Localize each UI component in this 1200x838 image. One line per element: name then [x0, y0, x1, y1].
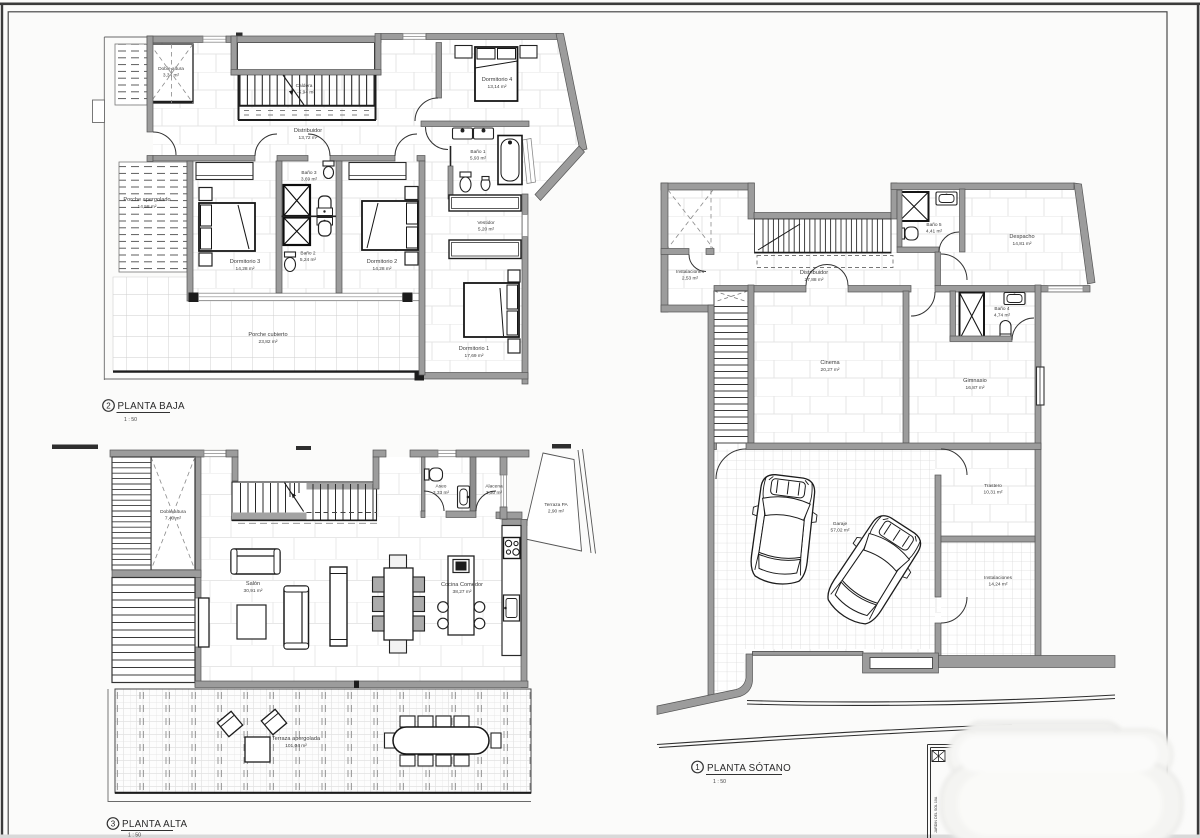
- svg-text:3,69 m²: 3,69 m²: [301, 177, 318, 183]
- svg-text:Baño 4: Baño 4: [994, 306, 1010, 312]
- svg-text:Terraza apergolada: Terraza apergolada: [272, 736, 321, 742]
- svg-text:Porche cubierto: Porche cubierto: [248, 332, 287, 338]
- svg-text:Doble altura: Doble altura: [160, 509, 186, 515]
- svg-text:Porche apergolado: Porche apergolado: [123, 197, 170, 203]
- svg-text:1 : 50: 1 : 50: [124, 417, 137, 423]
- svg-text:30,91 m²: 30,91 m²: [244, 588, 263, 594]
- svg-text:Dormitorio 3: Dormitorio 3: [230, 259, 260, 265]
- svg-text:Terraza PA: Terraza PA: [544, 502, 568, 508]
- svg-text:JARDIN DEL SOL 10A: JARDIN DEL SOL 10A: [934, 796, 938, 833]
- svg-text:PLANTA BAJA: PLANTA BAJA: [118, 401, 186, 412]
- svg-text:20,27 m²: 20,27 m²: [821, 367, 840, 373]
- svg-text:Despacho: Despacho: [1009, 234, 1034, 240]
- svg-text:5,20 m²: 5,20 m²: [478, 227, 495, 233]
- svg-text:5,24 m²: 5,24 m²: [300, 257, 317, 263]
- svg-text:Dormitorio 1: Dormitorio 1: [459, 346, 489, 352]
- svg-text:23,82 m²: 23,82 m²: [259, 339, 278, 345]
- svg-text:Instalaciones: Instalaciones: [984, 575, 1013, 581]
- svg-text:38,27 m²: 38,27 m²: [453, 589, 472, 595]
- svg-text:14,28 m²: 14,28 m²: [236, 266, 255, 272]
- svg-text:10,31 m²: 10,31 m²: [984, 490, 1003, 496]
- svg-text:14,28 m²: 14,28 m²: [373, 266, 392, 272]
- svg-text:5,93 m²: 5,93 m²: [470, 156, 487, 162]
- svg-text:57,02 m²: 57,02 m²: [831, 528, 850, 534]
- svg-text:2,53 m²: 2,53 m²: [682, 276, 699, 282]
- svg-text:PLANTA ALTA: PLANTA ALTA: [122, 819, 188, 830]
- svg-text:Cocina Comedor: Cocina Comedor: [441, 582, 483, 588]
- svg-text:3: 3: [111, 820, 116, 829]
- svg-text:Garaje: Garaje: [833, 521, 848, 527]
- svg-text:2,90 m²: 2,90 m²: [548, 509, 565, 515]
- svg-text:Trastero: Trastero: [984, 483, 1002, 489]
- svg-text:13,72 m²: 13,72 m²: [299, 135, 318, 141]
- svg-text:1: 1: [695, 763, 700, 772]
- svg-text:Distribuidor: Distribuidor: [294, 128, 322, 134]
- svg-text:Baño 3: Baño 3: [301, 170, 317, 176]
- svg-text:Baño 2: Baño 2: [300, 251, 316, 257]
- svg-text:Baño 1: Baño 1: [470, 149, 486, 155]
- svg-text:14,81 m²: 14,81 m²: [1013, 241, 1032, 247]
- svg-text:Caldera: Caldera: [296, 83, 313, 89]
- svg-text:Doble altura: Doble altura: [158, 66, 184, 72]
- svg-text:16,87 m²: 16,87 m²: [966, 385, 985, 391]
- svg-text:-5,94 m²: -5,94 m²: [297, 90, 315, 96]
- svg-text:Aseo: Aseo: [436, 484, 447, 490]
- svg-text:Alacena: Alacena: [485, 484, 503, 490]
- svg-text:14,58 m²: 14,58 m²: [138, 204, 157, 210]
- svg-text:17,69 m²: 17,69 m²: [465, 353, 484, 359]
- svg-text:4,74 m²: 4,74 m²: [994, 313, 1011, 319]
- svg-text:Vestidor: Vestidor: [477, 220, 495, 226]
- svg-text:Distribuidor: Distribuidor: [800, 270, 828, 276]
- svg-text:14,24 m²: 14,24 m²: [989, 582, 1008, 588]
- svg-text:Cinema: Cinema: [820, 360, 840, 366]
- svg-text:1 : 50: 1 : 50: [713, 779, 726, 785]
- svg-text:7,40 m²: 7,40 m²: [165, 516, 182, 522]
- svg-text:3,34 m²: 3,34 m²: [163, 73, 180, 79]
- svg-text:Gimnasio: Gimnasio: [963, 378, 987, 384]
- svg-text:Baño 5: Baño 5: [926, 222, 942, 228]
- svg-text:Dormitorio 4: Dormitorio 4: [482, 77, 512, 83]
- svg-text:PLANTA SÓTANO: PLANTA SÓTANO: [707, 763, 791, 774]
- svg-text:101,04 m²: 101,04 m²: [285, 743, 307, 749]
- svg-text:Salón: Salón: [246, 581, 260, 587]
- svg-text:13,14 m²: 13,14 m²: [488, 84, 507, 90]
- svg-text:Instalaciones: Instalaciones: [676, 269, 705, 275]
- svg-text:4,41 m²: 4,41 m²: [926, 229, 943, 235]
- svg-text:Dormitorio 2: Dormitorio 2: [367, 259, 397, 265]
- svg-text:2: 2: [106, 402, 111, 411]
- svg-text:1 : 50: 1 : 50: [128, 833, 141, 838]
